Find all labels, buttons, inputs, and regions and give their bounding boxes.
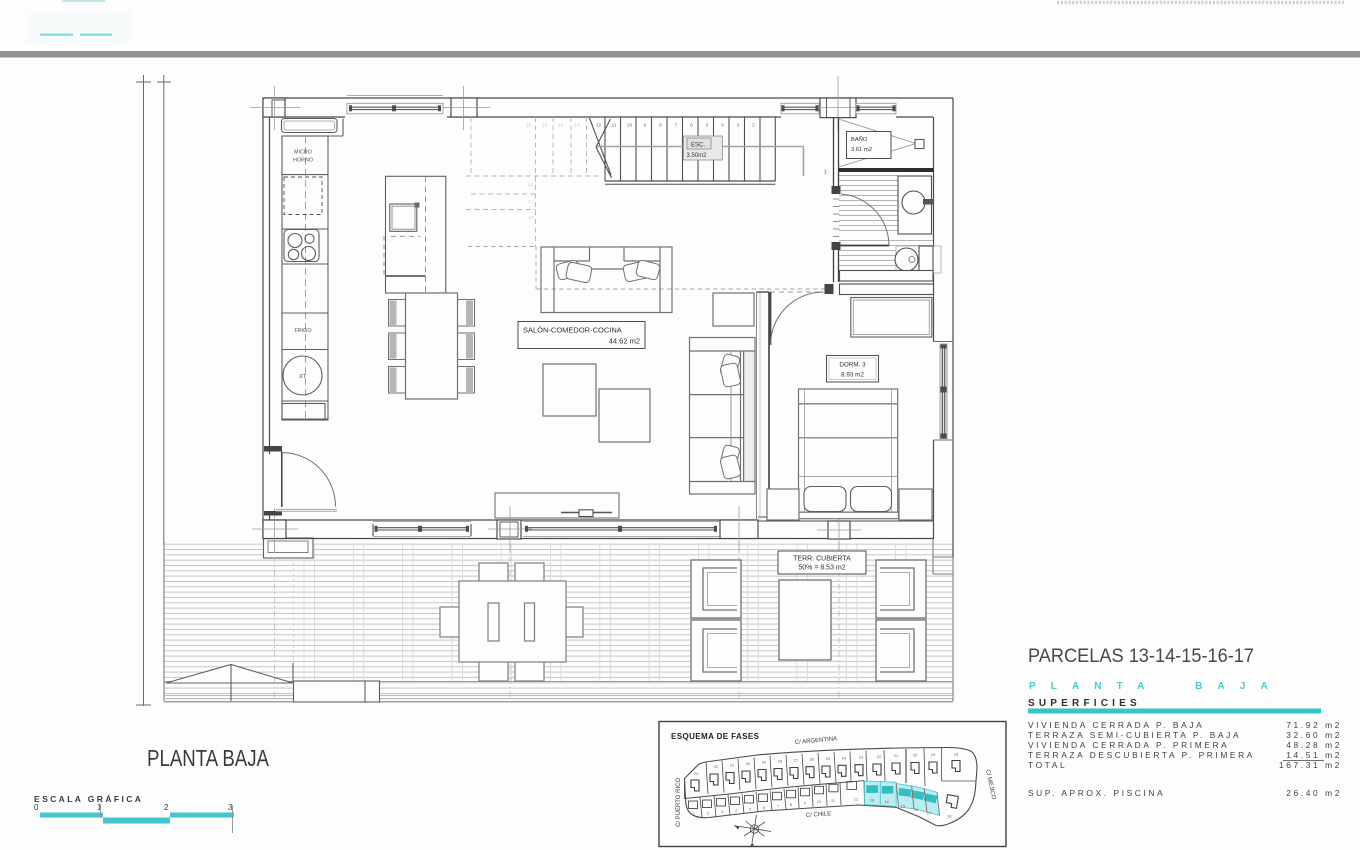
svg-text:3.50m2: 3.50m2 — [687, 153, 708, 159]
svg-text:24: 24 — [694, 771, 699, 776]
svg-text:16: 16 — [526, 123, 532, 129]
svg-text:VIVIENDA CERRADA P. PRIMERA: VIVIENDA CERRADA P. PRIMERA — [1028, 740, 1229, 750]
svg-text:HORNO: HORNO — [293, 158, 313, 164]
svg-text:25: 25 — [826, 756, 831, 761]
svg-text:DORM. 3: DORM. 3 — [839, 362, 866, 369]
svg-text:PLANTA BAJA: PLANTA BAJA — [1029, 681, 1283, 692]
svg-text:18: 18 — [528, 215, 534, 221]
svg-text:C/ PUERTO RICO: C/ PUERTO RICO — [676, 778, 682, 827]
svg-text:TERRAZA DESCUBIERTA P. PRIMERA: TERRAZA DESCUBIERTA P. PRIMERA — [1028, 750, 1255, 760]
svg-text:20: 20 — [913, 753, 918, 758]
svg-text:ESCALA GRÁFICA: ESCALA GRÁFICA — [34, 794, 143, 804]
svg-text:15: 15 — [901, 804, 906, 809]
svg-text:TOTAL: TOTAL — [1028, 760, 1067, 770]
svg-text:30: 30 — [746, 761, 751, 766]
svg-text:17: 17 — [528, 199, 534, 205]
svg-text:PLANTA BAJA: PLANTA BAJA — [147, 745, 270, 771]
svg-text:24: 24 — [842, 755, 847, 760]
svg-text:26: 26 — [810, 757, 815, 762]
svg-text:3: 3 — [737, 123, 740, 129]
svg-text:5: 5 — [706, 123, 709, 129]
svg-text:31: 31 — [730, 763, 735, 768]
svg-text:14: 14 — [884, 799, 889, 804]
svg-text:29: 29 — [762, 760, 767, 765]
svg-text:TERRAZA SEMI-CUBIERTA P. BAJA: TERRAZA SEMI-CUBIERTA P. BAJA — [1028, 730, 1241, 740]
svg-text:BAÑO: BAÑO — [851, 136, 868, 143]
svg-text:ESQUEMA DE FASES: ESQUEMA DE FASES — [671, 732, 760, 741]
svg-text:SUPERFICIES: SUPERFICIES — [1028, 698, 1141, 709]
svg-text:32: 32 — [714, 764, 719, 769]
svg-text:14: 14 — [558, 123, 564, 129]
svg-text:1: 1 — [824, 170, 827, 176]
svg-text:MICRO: MICRO — [294, 150, 312, 156]
svg-text:8.93 m2: 8.93 m2 — [841, 372, 864, 379]
svg-text:17: 17 — [927, 811, 932, 816]
svg-text:12: 12 — [854, 797, 859, 802]
svg-text:9: 9 — [644, 123, 647, 129]
svg-text:7: 7 — [675, 123, 678, 129]
svg-text:13: 13 — [574, 123, 580, 129]
svg-text:21: 21 — [894, 753, 899, 758]
svg-text:11: 11 — [612, 123, 617, 129]
svg-text:VIVIENDA CERRADA P. BAJA: VIVIENDA CERRADA P. BAJA — [1028, 720, 1204, 730]
svg-text:10: 10 — [817, 799, 822, 804]
svg-text:1: 1 — [97, 803, 102, 812]
svg-text:15: 15 — [542, 123, 548, 129]
svg-text:14.51 m2: 14.51 m2 — [1286, 750, 1342, 760]
svg-text:167.31 m2: 167.31 m2 — [1279, 760, 1342, 770]
svg-text:SUP. APROX. PISCINA: SUP. APROX. PISCINA — [1028, 788, 1165, 798]
svg-text:26.40 m2: 26.40 m2 — [1286, 788, 1342, 798]
svg-text:2: 2 — [164, 803, 169, 812]
svg-text:50% = 8.53 m2: 50% = 8.53 m2 — [798, 565, 845, 572]
svg-text:12: 12 — [596, 123, 602, 129]
svg-text:44.62 m2: 44.62 m2 — [609, 337, 640, 346]
svg-text:2: 2 — [752, 123, 755, 129]
svg-text:ESC.: ESC. — [691, 143, 705, 149]
svg-text:19: 19 — [931, 752, 936, 757]
svg-text:6: 6 — [690, 123, 693, 129]
svg-text:10: 10 — [627, 123, 633, 129]
svg-text:48.28 m2: 48.28 m2 — [1286, 740, 1342, 750]
svg-text:8: 8 — [659, 123, 662, 129]
svg-text:32.60 m2: 32.60 m2 — [1286, 730, 1342, 740]
svg-text:PARCELAS 13-14-15-16-17: PARCELAS 13-14-15-16-17 — [1028, 645, 1254, 667]
svg-text:TERR. CUBIERTA: TERR. CUBIERTA — [793, 556, 851, 563]
svg-text:FRIGO: FRIGO — [294, 328, 311, 334]
svg-text:18: 18 — [947, 814, 952, 819]
svg-text:16: 16 — [527, 182, 533, 188]
svg-text:SALÓN-COMEDOR-COCINA: SALÓN-COMEDOR-COCINA — [523, 326, 622, 335]
svg-text:27: 27 — [794, 758, 799, 763]
svg-text:4: 4 — [721, 123, 724, 129]
svg-text:3.61 m2: 3.61 m2 — [851, 147, 872, 153]
svg-text:0: 0 — [34, 803, 39, 812]
svg-text:XT: XT — [299, 374, 307, 380]
svg-text:18: 18 — [954, 752, 959, 757]
svg-text:13: 13 — [870, 798, 875, 803]
svg-text:71.92 m2: 71.92 m2 — [1286, 720, 1342, 730]
svg-text:16: 16 — [914, 807, 919, 812]
svg-text:28: 28 — [778, 759, 783, 764]
svg-text:22: 22 — [877, 754, 882, 759]
svg-text:23: 23 — [859, 755, 864, 760]
